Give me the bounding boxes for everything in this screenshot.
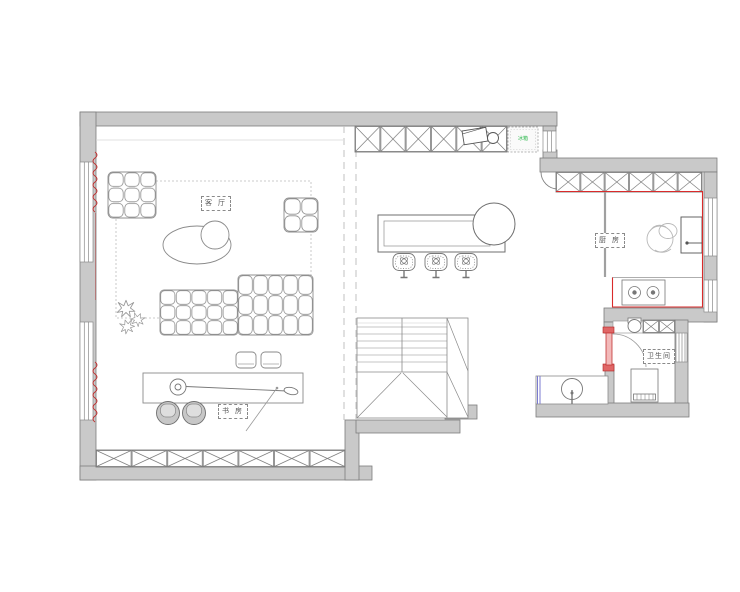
window-right-lower [704,280,717,312]
bathroom-label: 卫生间 [643,349,675,364]
staircase [357,318,468,418]
stool-small [236,352,256,368]
wall-under-stairs [356,420,460,433]
fridge-text-label: 冰箱 [518,136,528,142]
window-left-upper [80,162,93,262]
rounded-wall-corner [541,172,558,189]
wall-bottom-left [80,466,372,480]
washing-machine-icon [631,369,658,402]
bar-stool-icon [393,254,415,278]
toilet-icon [628,320,641,333]
study-bookshelf [96,450,345,467]
kitchen-top-cabinets [556,172,702,192]
bar-island [378,203,515,278]
wall-conn-stub-top [543,126,556,131]
basin-counter [536,376,608,404]
wall-wing-top [540,158,717,172]
sofa-left-block [160,290,238,335]
kitchen-label: 厨 房 [595,233,625,248]
wall-top-main [80,112,557,126]
bar-stool-icon [455,254,477,278]
sofa-right-block [238,275,313,335]
kitchen-area [556,192,703,308]
window-bathroom-vent [676,333,687,362]
armchair [108,172,156,218]
stool-small [261,352,281,368]
window-top-connector [543,131,556,152]
round-table-icon [473,203,515,245]
person-figure-icon [647,224,677,253]
study-label: 书 房 [218,404,248,419]
coffee-table-icon [201,221,229,249]
floor-plan-drawing [0,0,740,592]
window-right-upper [704,198,717,256]
study-area [143,352,303,431]
floor-plan-canvas: 客 厅 书 房 厨 房 卫生间 冰箱 [0,0,740,592]
door-swing-arc [612,334,646,367]
door-jamb-top [603,327,614,333]
ottoman [284,198,318,232]
bar-stool-icon [425,254,447,278]
window-left-lower [80,322,93,420]
desk-chair-icon [183,402,206,425]
hall-top-cabinets [355,126,538,152]
kitchen-sink-icon [681,217,702,253]
living-room-label: 客 厅 [201,196,231,211]
door-leaf [606,333,612,365]
wall-bath-bottom [536,403,689,417]
bathroom-door [603,327,646,371]
desk-chair-icon [157,402,180,425]
bar-stools [393,254,477,278]
cooktop-icon [622,280,665,305]
